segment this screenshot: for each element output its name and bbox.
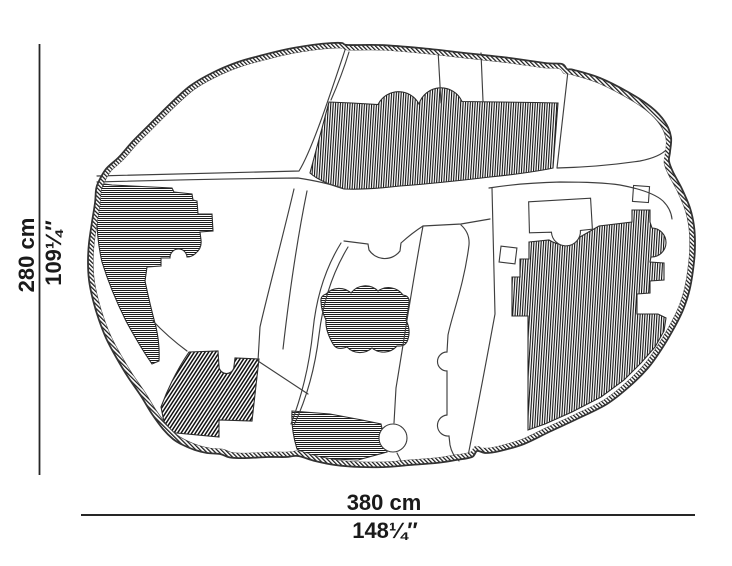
svg-text:280 cm: 280 cm xyxy=(14,218,39,293)
svg-text:380 cm: 380 cm xyxy=(347,490,422,515)
svg-text:109¼″: 109¼″ xyxy=(41,220,66,286)
svg-text:148¼″: 148¼″ xyxy=(352,518,418,543)
